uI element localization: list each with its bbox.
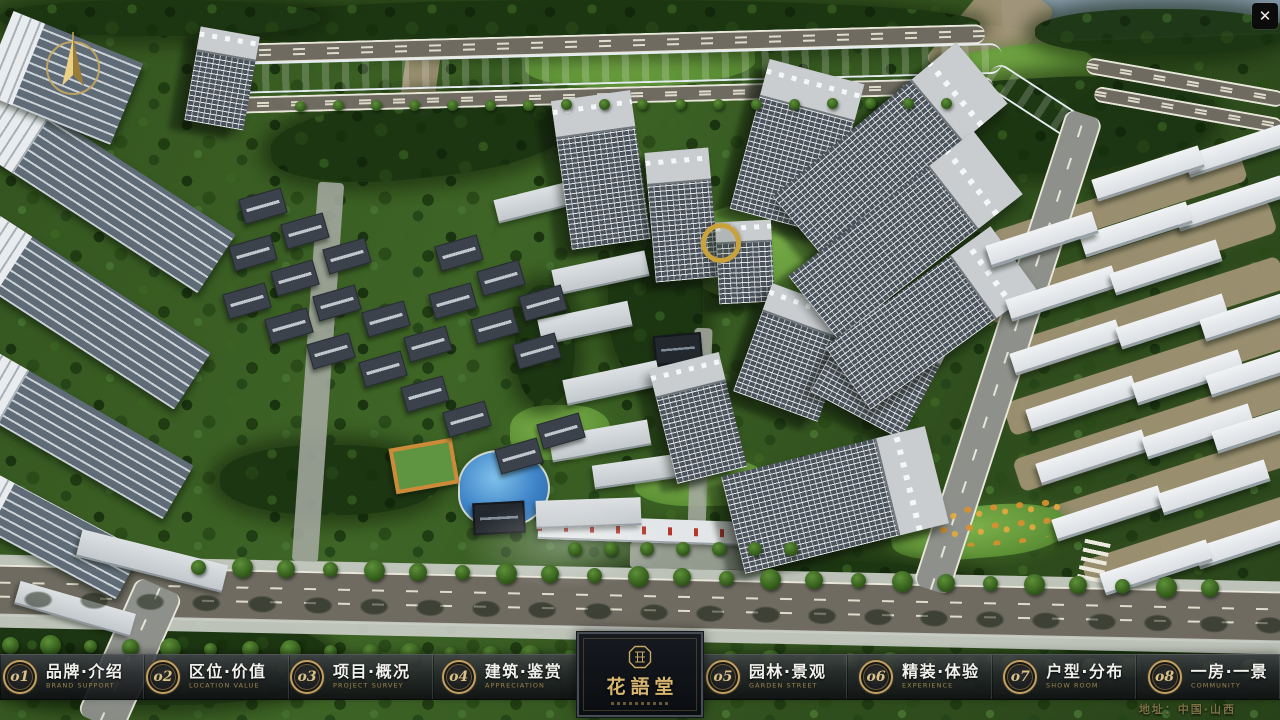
riverside-tree <box>827 98 838 109</box>
street-tree <box>676 542 690 556</box>
menu-item-label-zh: 品牌·介绍 <box>46 663 124 681</box>
tree-cluster <box>1035 9 1280 55</box>
riverside-tree <box>409 100 420 111</box>
riverside-tree <box>865 98 876 109</box>
menu-item-text: 一房·一景COMMUNITY <box>1191 663 1269 692</box>
riverside-tree <box>675 99 686 110</box>
menu-item-label-en: LOCATION VALUE <box>189 684 260 690</box>
menu-item-text: 精装·体验EXPERIENCE <box>902 663 980 692</box>
riverside-tree <box>485 100 496 111</box>
menu-item-label-en: APPRECIATION <box>485 684 545 690</box>
street-tree <box>587 568 602 583</box>
logo-title: 花語堂 <box>601 672 678 699</box>
logo-seal-icon <box>628 645 652 669</box>
logo-subtext-rule <box>611 702 669 705</box>
riverside-tree <box>523 100 534 111</box>
menu-item-number-badge: o8 <box>1148 660 1182 694</box>
street-tree <box>712 542 726 556</box>
masterplan-3d-render <box>0 0 1280 720</box>
street-tree <box>760 569 781 590</box>
menu-item-number-badge: o6 <box>859 660 893 694</box>
menu-item-text: 园林·景观GARDEN STREET <box>749 663 844 692</box>
riverside-tree <box>941 98 952 109</box>
street-tree <box>232 557 253 578</box>
riverside-tree <box>637 99 648 110</box>
street-tree <box>277 560 295 578</box>
menu-item-label-en: COMMUNITY <box>1191 684 1241 690</box>
street-tree <box>455 565 470 580</box>
golden-plaza-ring <box>701 223 741 263</box>
riverside-tree <box>713 99 724 110</box>
menu-item-o7[interactable]: o7户型·分布SHOW ROOM <box>992 655 1136 699</box>
menu-item-label-zh: 一房·一景 <box>1191 663 1269 681</box>
riverside-tree <box>371 100 382 111</box>
menu-item-text: 品牌·介绍BRAND SUPPORT <box>46 663 142 692</box>
riverside-tree <box>561 99 572 110</box>
street-tree <box>851 573 866 588</box>
riverside-tree <box>295 101 306 112</box>
menu-item-o2[interactable]: o2区位·价值LOCATION VALUE <box>144 655 288 699</box>
address-label: 地址：中国·山西 <box>1139 701 1236 717</box>
street-tree <box>409 563 427 581</box>
presentation-window: ✕ o1品牌·介绍BRAND SUPPORTo2区位·价值LOCATION VA… <box>0 0 1280 720</box>
menu-item-o3[interactable]: o3项目·概况PROJECT SURVEY <box>289 655 433 699</box>
street-tree <box>719 571 734 586</box>
menu-item-label-zh: 园林·景观 <box>749 663 827 681</box>
street-tree <box>748 542 762 556</box>
riverside-tree <box>447 100 458 111</box>
menu-item-label-zh: 户型·分布 <box>1046 663 1124 681</box>
close-button[interactable]: ✕ <box>1252 3 1278 29</box>
menu-item-text: 建筑·鉴赏APPRECIATION <box>485 663 568 692</box>
street-tree <box>2 637 19 654</box>
street-tree <box>983 576 998 591</box>
menu-item-label-en: GARDEN STREET <box>749 684 818 690</box>
menu-item-label-zh: 项目·概况 <box>333 663 411 681</box>
riverside-tree <box>599 99 610 110</box>
street-tree <box>496 563 517 584</box>
bottom-menu-bar: o1品牌·介绍BRAND SUPPORTo2区位·价值LOCATION VALU… <box>0 654 1280 700</box>
street-tree <box>784 542 798 556</box>
riverside-tree <box>903 98 914 109</box>
residential-tower <box>644 147 719 282</box>
street-tree <box>84 640 97 653</box>
menu-item-number-badge: o1 <box>3 660 37 694</box>
menu-item-number-badge: o2 <box>146 660 180 694</box>
street-tree <box>1156 577 1177 598</box>
street-tree <box>937 574 955 592</box>
riverside-tree <box>333 100 344 111</box>
street-tree <box>640 542 654 556</box>
menu-item-number-badge: o5 <box>706 660 740 694</box>
menu-item-label-en: EXPERIENCE <box>902 684 953 690</box>
street-tree <box>191 560 206 575</box>
menu-item-label-en: SHOW ROOM <box>1046 684 1099 690</box>
street-tree <box>1115 579 1130 594</box>
project-logo-panel[interactable]: 花語堂 <box>577 632 703 717</box>
menu-item-text: 区位·价值LOCATION VALUE <box>189 663 287 692</box>
menu-item-o4[interactable]: o4建筑·鉴赏APPRECIATION <box>433 655 577 699</box>
menu-item-number-badge: o7 <box>1003 660 1037 694</box>
street-tree <box>364 560 385 581</box>
menu-item-text: 户型·分布SHOW ROOM <box>1046 663 1124 692</box>
menu-item-o6[interactable]: o6精装·体验EXPERIENCE <box>847 655 991 699</box>
menu-item-label-zh: 精装·体验 <box>902 663 980 681</box>
street-tree <box>1024 574 1045 595</box>
menu-item-o8[interactable]: o8一房·一景COMMUNITY <box>1136 655 1280 699</box>
riverside-tree <box>751 99 762 110</box>
menu-item-number-badge: o3 <box>290 660 324 694</box>
menu-item-o1[interactable]: o1品牌·介绍BRAND SUPPORT <box>0 655 144 699</box>
street-tree <box>323 562 338 577</box>
menu-group-right: o5园林·景观GARDEN STREETo6精装·体验EXPERIENCEo7户… <box>703 654 1280 700</box>
menu-item-text: 项目·概况PROJECT SURVEY <box>333 663 431 692</box>
menu-item-label-zh: 建筑·鉴赏 <box>485 663 563 681</box>
north-compass-icon <box>36 28 110 102</box>
riverside-tree <box>789 99 800 110</box>
menu-item-number-badge: o4 <box>442 660 476 694</box>
menu-item-o5[interactable]: o5园林·景观GARDEN STREET <box>703 655 847 699</box>
menu-item-label-en: BRAND SUPPORT <box>46 684 115 690</box>
menu-item-label-zh: 区位·价值 <box>189 663 267 681</box>
street-tree <box>604 542 618 556</box>
street-tree <box>892 571 913 592</box>
street-tree <box>628 566 649 587</box>
street-tree <box>568 542 582 556</box>
close-icon: ✕ <box>1259 7 1272 25</box>
street-tree <box>805 571 823 589</box>
menu-item-label-en: PROJECT SURVEY <box>333 684 404 690</box>
menu-group-left: o1品牌·介绍BRAND SUPPORTo2区位·价值LOCATION VALU… <box>0 654 577 700</box>
